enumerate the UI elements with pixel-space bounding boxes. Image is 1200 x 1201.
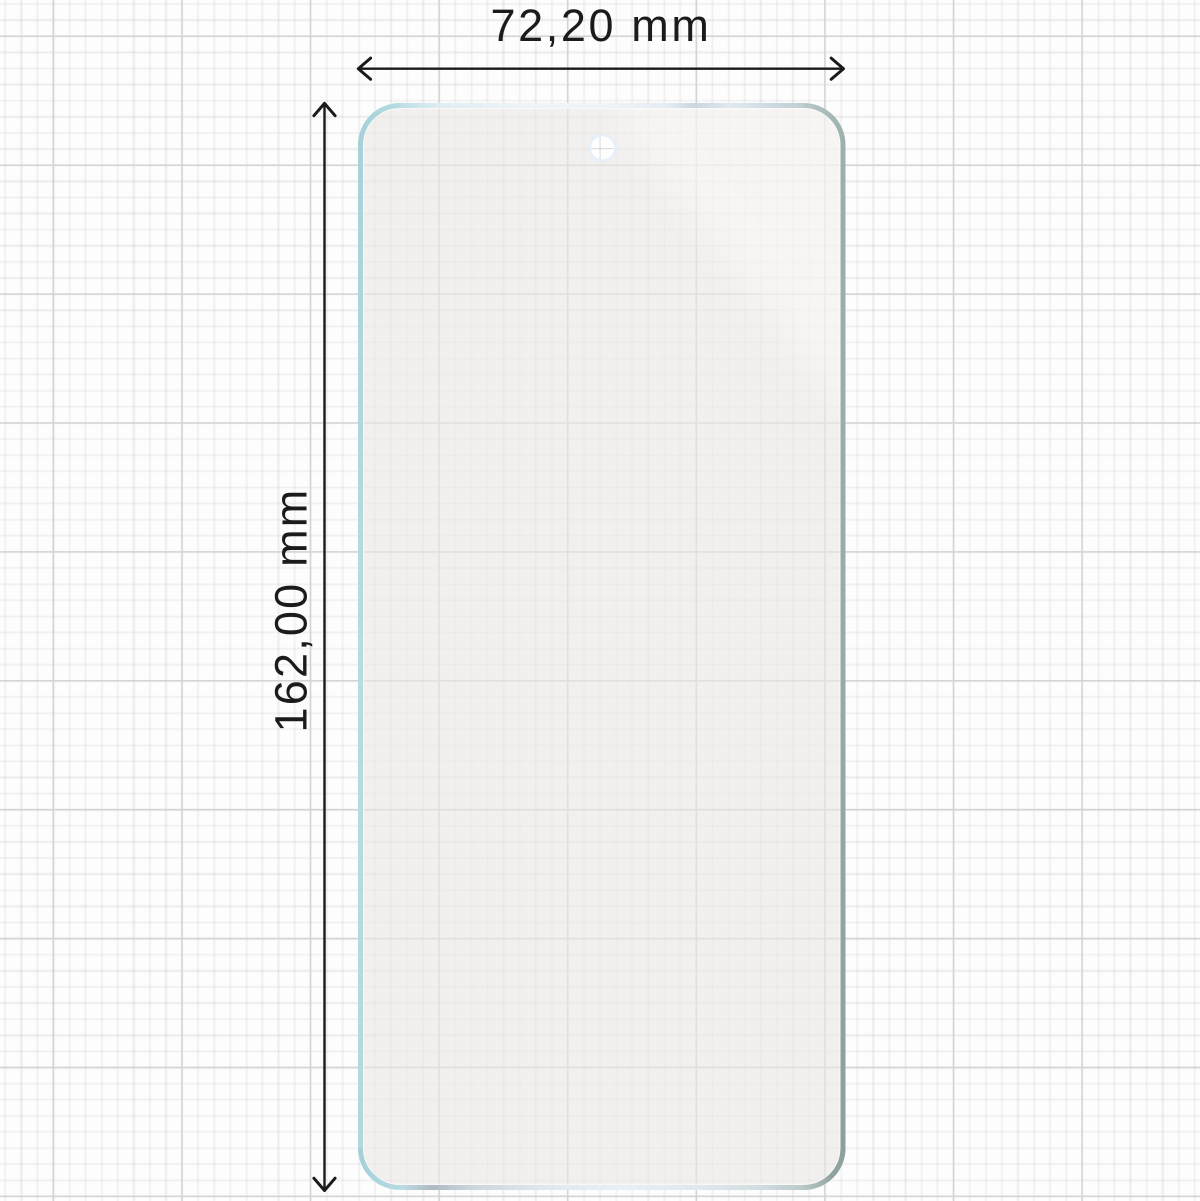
svg-text:72,20 mm: 72,20 mm — [491, 0, 712, 51]
svg-text:162,00 mm: 162,00 mm — [266, 488, 317, 733]
